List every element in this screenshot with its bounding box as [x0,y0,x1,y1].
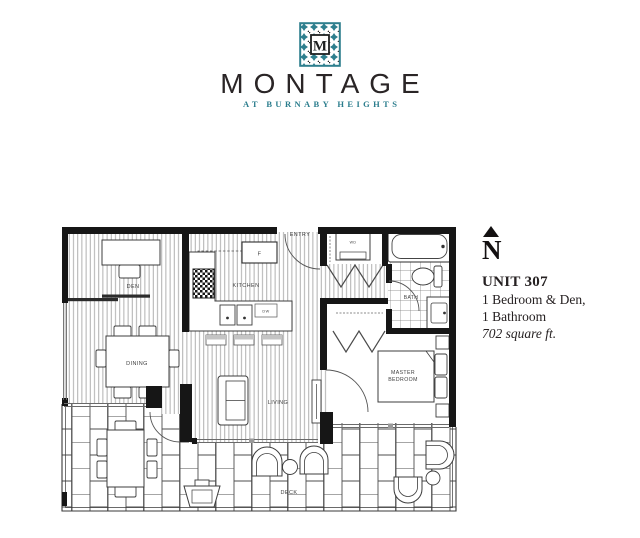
appliance-label-dishwasher: DW [262,310,269,314]
room-label-living: LIVING [268,400,288,406]
bedroom-closet-floor [331,302,386,330]
sofa [218,376,248,425]
bathtub [388,231,451,262]
stove-icon [193,269,214,298]
lounge-chair-3 [426,441,454,469]
floorplan-drawing: ENTRY DEN KITCHEN DINING LIVING BATH MAS… [0,0,640,538]
nightstand-top [436,336,449,349]
tv-unit [312,380,321,423]
appliance-label-fridge: F [258,252,262,258]
room-label-master-2: BEDROOM [388,377,418,383]
room-label-dining: DINING [126,361,148,367]
room-label-kitchen: KITCHEN [233,283,260,289]
deck-side-table-1 [283,460,298,475]
floorplan-page: M MONTAGE AT BURNABY HEIGHTS N UNIT 307 … [0,0,640,538]
lounge-chair-4 [394,477,422,503]
room-label-master-1: MASTER [391,370,415,376]
deckdoor-threshold [160,402,182,414]
room-label-den: DEN [127,284,140,290]
appliance-label-washer-dryer: WD [350,241,357,245]
bath-vanity-sink [427,297,451,329]
nightstand-bottom [436,404,449,417]
room-label-bath: BATH [404,295,419,301]
toilet [412,266,442,287]
bar-stools [206,335,282,345]
deck-side-table-2 [426,471,440,485]
lounge-chair-1 [252,447,282,476]
lounge-chair-2 [300,446,328,474]
washer-dryer-unit [330,232,370,262]
room-label-entry: ENTRY [290,232,311,238]
room-label-deck: DECK [281,490,298,496]
